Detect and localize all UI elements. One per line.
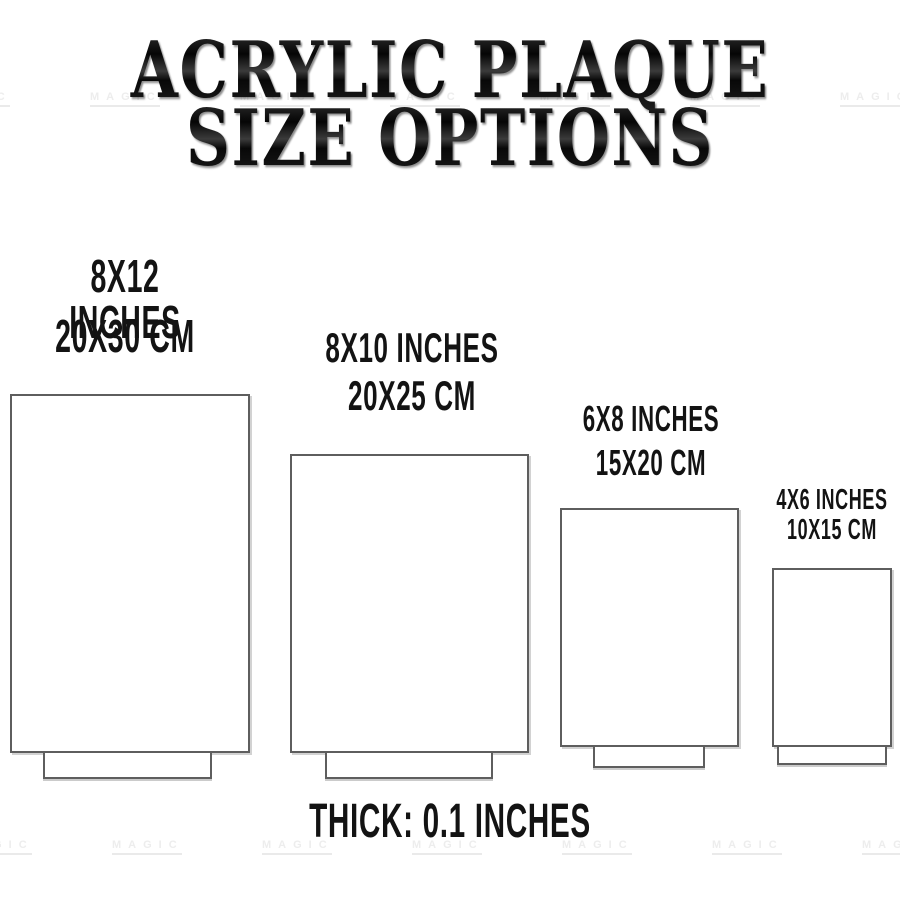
watermark-magic: MAGIC [0,840,32,855]
watermark-magic: MAGIC [840,92,900,107]
size-8x12-cm-label: 20X30 CM [32,313,218,359]
plaque-8x12 [10,394,250,753]
title-line-2: SIZE OPTIONS [99,100,801,178]
size-8x10-inches-label: 8X10 INCHES [319,327,505,369]
plaque-6x8 [560,508,739,747]
watermark-magic: MAGIC [0,92,10,107]
size-6x8-cm-label: 15X20 CM [558,445,744,481]
stand-8x12 [43,753,212,779]
size-4x6-cm-label: 10X15 CM [739,516,900,545]
stand-6x8 [593,747,705,768]
stand-8x10 [325,753,493,779]
plaque-4x6 [772,568,892,747]
size-6x8-inches-label: 6X8 INCHES [558,401,744,437]
size-8x10-cm-label: 20X25 CM [319,375,505,417]
acrylic-plaque-size-chart: MAGIC MAGIC MAGIC MAGIC MAGIC MAGIC MAGI… [0,0,900,900]
size-4x6-inches-label: 4X6 INCHES [739,486,900,515]
stand-4x6 [777,747,887,765]
thickness-note: THICK: 0.1 INCHES [171,798,729,846]
watermark-magic: MAGIC [862,840,900,855]
plaque-8x10 [290,454,529,753]
